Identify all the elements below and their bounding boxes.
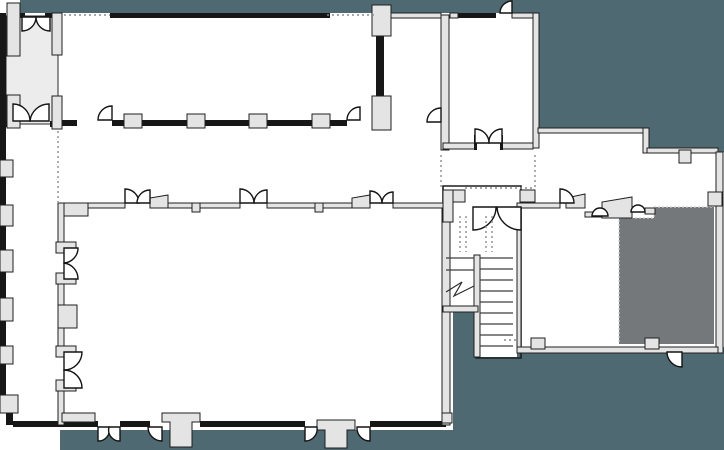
hall-top-wall [393, 203, 443, 208]
wall-pilaster [0, 346, 13, 364]
bottom-wall-segment [370, 421, 446, 427]
wall-pier [531, 338, 545, 349]
bottom-wall-segment [200, 421, 305, 427]
wall-segment [112, 120, 124, 126]
right-exterior-wall [716, 152, 723, 353]
wall-pier [312, 114, 330, 128]
exterior-top-band [20, 0, 538, 13]
wall-segment [502, 143, 533, 149]
bottom-wall-segment [13, 421, 62, 427]
wall-segment [443, 143, 475, 149]
wall-corner [0, 395, 18, 413]
landing-wall [443, 190, 453, 222]
floor-plan-stage [0, 0, 724, 450]
wall-pier [52, 96, 62, 129]
hall-right-wall [442, 208, 450, 425]
upper-hall-top-wall [110, 13, 330, 18]
wall-pilaster [0, 160, 13, 177]
wall-segment [517, 203, 560, 208]
wall-segment [142, 120, 187, 126]
bottom-wall-segment [120, 421, 150, 427]
wall-pier [249, 114, 267, 128]
wall-pier [372, 5, 391, 36]
hall-left-wall [58, 203, 64, 248]
wall-segment [330, 120, 347, 126]
wall-step [62, 413, 95, 422]
wall-pier [52, 13, 62, 55]
floor-plan-drawing [0, 0, 724, 450]
wall-pilaster [0, 250, 13, 272]
wall-segment [62, 120, 77, 126]
wall-corner [442, 413, 452, 423]
room-divider-wall [441, 15, 449, 150]
wall-segment [450, 13, 458, 18]
landing-corner [520, 190, 535, 202]
wall-step [645, 208, 655, 214]
wall-segment [267, 120, 312, 126]
right-wing-bottom-wall [517, 347, 718, 353]
wall-pilaster [58, 305, 77, 328]
wall-pier [708, 192, 722, 206]
stair-lower-wall [443, 306, 478, 312]
corridor-north-wall [538, 128, 647, 133]
wall-segment [205, 120, 249, 126]
wall-pier [372, 96, 391, 130]
wall-pier [679, 150, 691, 163]
wall-pier [645, 338, 659, 349]
top-room-b-top-wall [458, 13, 496, 18]
wall-pier [187, 114, 205, 128]
wall-pilaster [0, 205, 13, 226]
wall-pilaster [7, 3, 20, 56]
wall-pier [192, 203, 200, 212]
wall-pilaster [0, 298, 13, 321]
wall-segment [387, 13, 441, 18]
wall-pier [124, 114, 142, 128]
wall-pier [315, 203, 323, 212]
dark-room [619, 207, 714, 344]
